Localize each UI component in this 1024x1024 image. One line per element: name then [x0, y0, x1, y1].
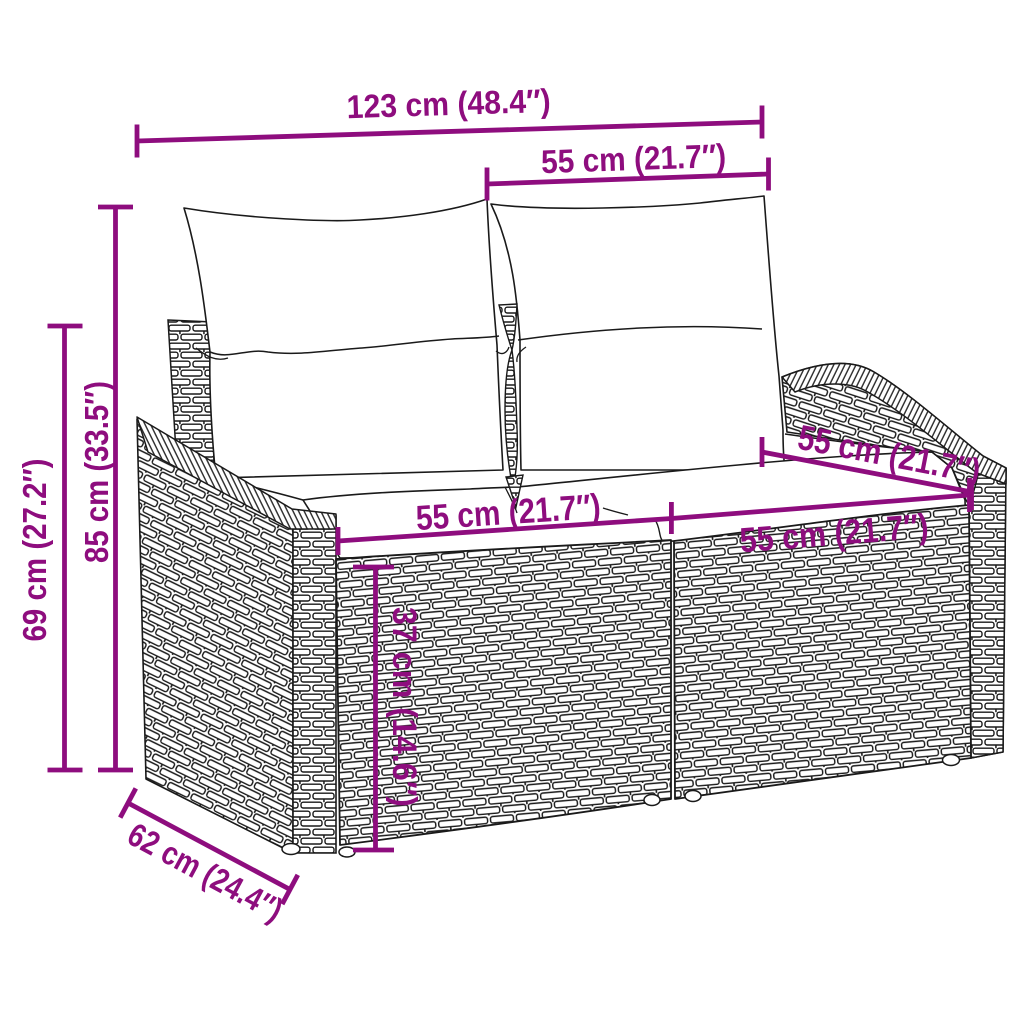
- svg-text:123 cm (48.4″): 123 cm (48.4″): [346, 82, 551, 125]
- svg-text:69 cm (27.2″): 69 cm (27.2″): [16, 459, 53, 642]
- svg-text:55 cm (21.7″): 55 cm (21.7″): [541, 137, 727, 180]
- svg-text:85 cm (33.5″): 85 cm (33.5″): [78, 381, 115, 563]
- svg-text:37 cm (14.6″): 37 cm (14.6″): [385, 607, 423, 807]
